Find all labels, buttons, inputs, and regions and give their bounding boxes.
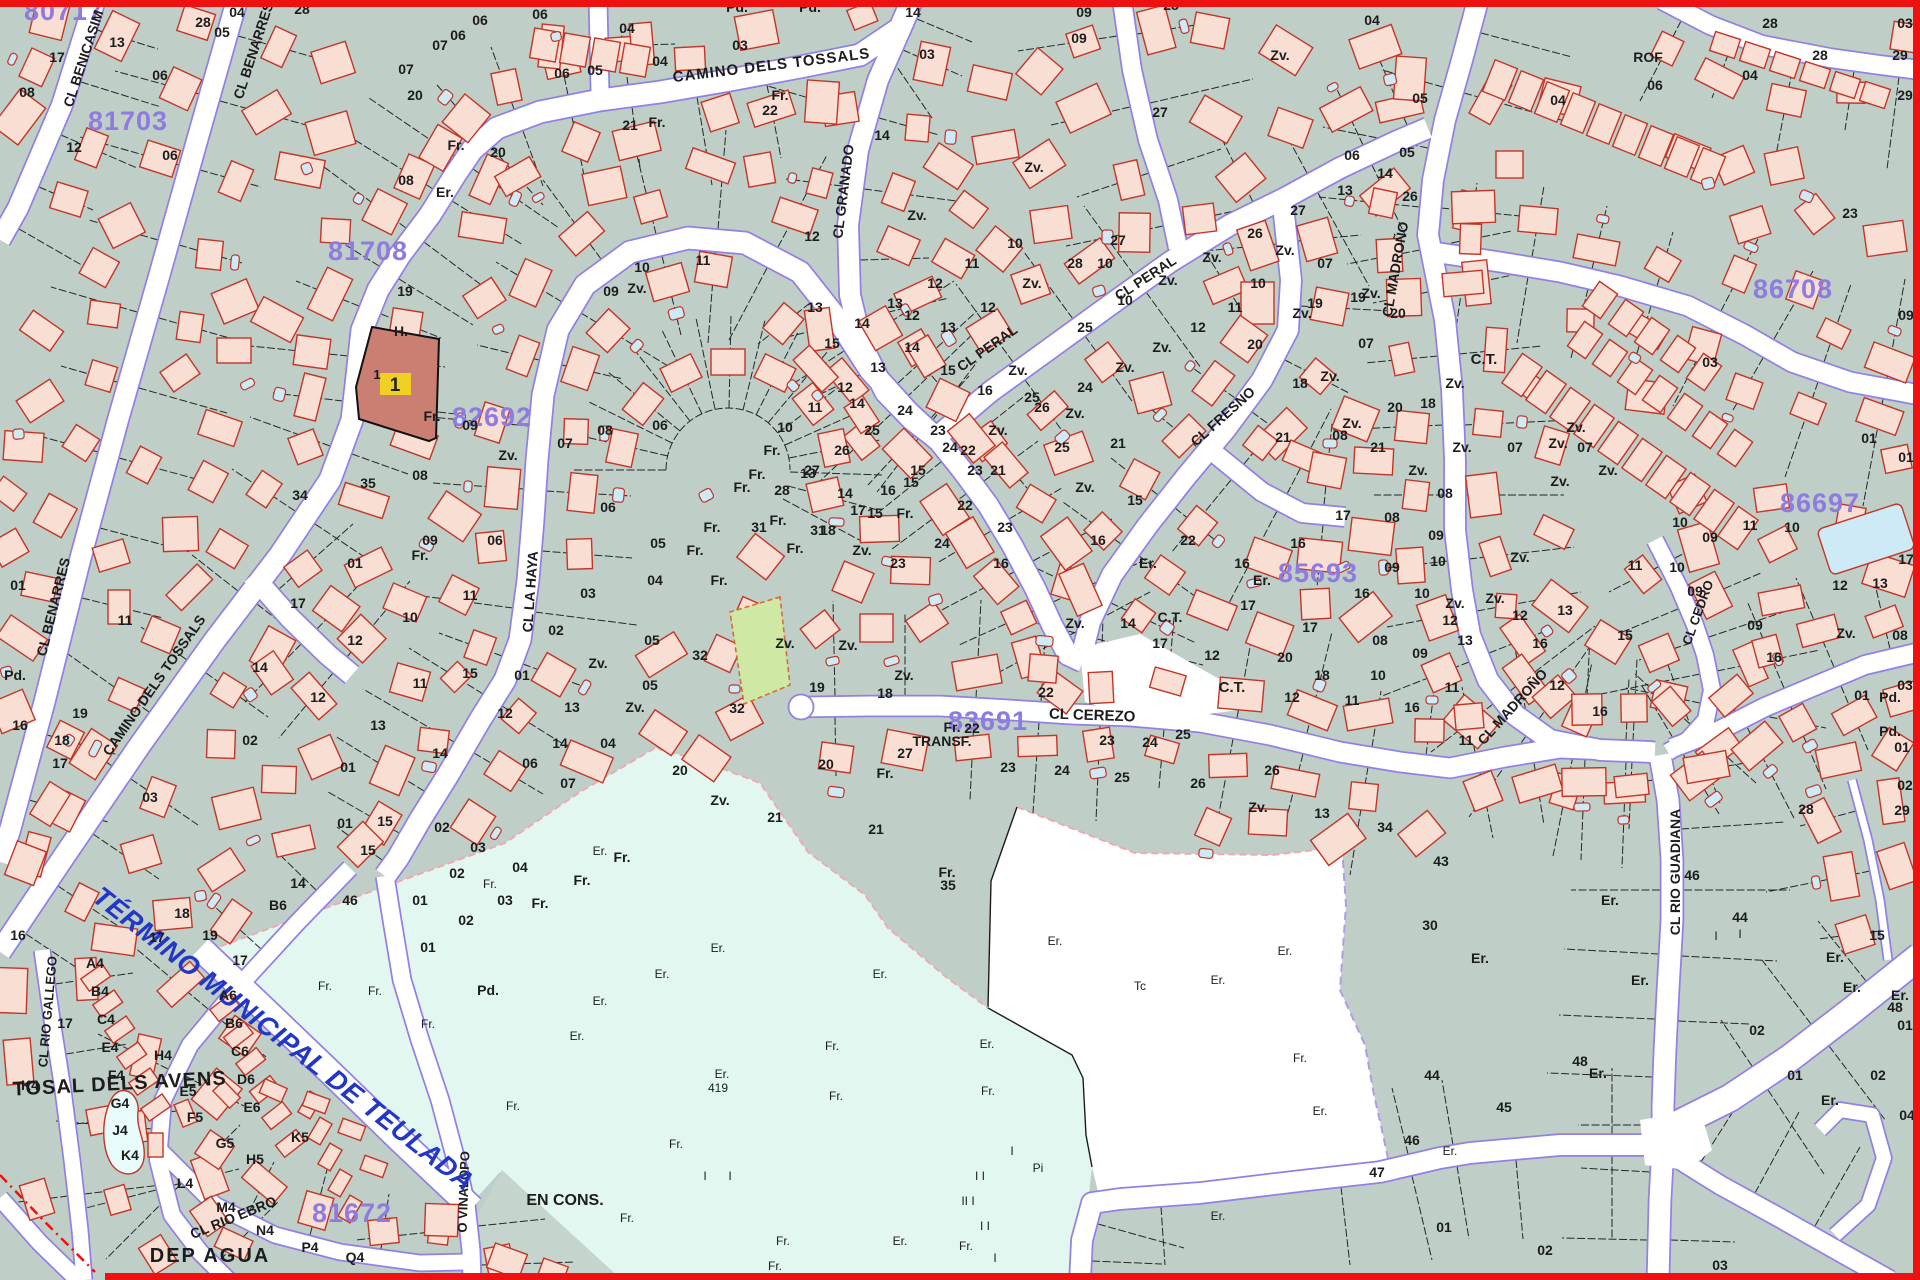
svg-text:19: 19: [1350, 289, 1366, 305]
svg-text:10: 10: [1097, 255, 1113, 271]
svg-text:Fr.: Fr.: [829, 1089, 843, 1103]
svg-text:G4: G4: [111, 1095, 130, 1111]
svg-text:09: 09: [462, 417, 478, 433]
svg-text:Er.: Er.: [1631, 972, 1649, 988]
svg-text:19: 19: [202, 927, 218, 943]
svg-text:18: 18: [174, 905, 190, 921]
svg-text:14: 14: [849, 395, 865, 411]
svg-text:H4: H4: [154, 1047, 172, 1063]
svg-text:08: 08: [1892, 627, 1908, 643]
svg-text:Er.: Er.: [1211, 1209, 1226, 1223]
svg-text:I: I: [1714, 929, 1717, 943]
svg-text:14: 14: [252, 659, 268, 675]
svg-text:28: 28: [1812, 47, 1828, 63]
svg-text:08: 08: [19, 84, 35, 100]
svg-text:Fr.: Fr.: [959, 1239, 973, 1253]
svg-text:Er.: Er.: [436, 184, 454, 200]
svg-text:06: 06: [652, 417, 668, 433]
svg-text:10: 10: [1784, 519, 1800, 535]
svg-text:E5: E5: [179, 1083, 196, 1099]
svg-text:12: 12: [66, 139, 82, 155]
svg-text:05: 05: [1412, 90, 1428, 106]
svg-text:13: 13: [109, 34, 125, 50]
svg-text:15: 15: [1617, 627, 1633, 643]
svg-text:Zv.: Zv.: [1008, 362, 1027, 378]
svg-text:23: 23: [1099, 732, 1115, 748]
svg-text:16: 16: [993, 555, 1009, 571]
svg-text:17: 17: [49, 49, 65, 65]
svg-text:22: 22: [964, 720, 980, 736]
svg-text:Fr.: Fr.: [776, 1234, 790, 1248]
svg-text:J4: J4: [112, 1122, 128, 1138]
svg-text:Fr.: Fr.: [896, 505, 913, 521]
svg-text:09: 09: [1071, 30, 1087, 46]
svg-text:05: 05: [587, 62, 603, 78]
svg-text:13: 13: [1337, 182, 1353, 198]
svg-text:419: 419: [708, 1081, 728, 1095]
svg-text:Zv.: Zv.: [1342, 415, 1361, 431]
svg-text:16: 16: [12, 717, 28, 733]
svg-text:12: 12: [1284, 689, 1300, 705]
svg-text:18: 18: [1314, 667, 1330, 683]
svg-text:05: 05: [650, 535, 666, 551]
svg-text:18: 18: [1292, 375, 1308, 391]
svg-text:17: 17: [1152, 635, 1168, 651]
svg-text:Zv.: Zv.: [588, 655, 607, 671]
svg-text:B6: B6: [225, 1015, 243, 1031]
svg-text:03: 03: [1897, 677, 1913, 693]
svg-text:Zv.: Zv.: [1158, 272, 1177, 288]
svg-text:B6: B6: [269, 897, 287, 913]
svg-text:23: 23: [1000, 759, 1016, 775]
svg-text:02: 02: [1870, 1067, 1886, 1083]
svg-text:27: 27: [1290, 202, 1306, 218]
svg-text:11: 11: [696, 252, 711, 268]
svg-text:Zv.: Zv.: [1836, 625, 1855, 641]
svg-text:Tc: Tc: [1134, 979, 1146, 993]
svg-text:81703: 81703: [88, 106, 168, 136]
svg-text:23: 23: [890, 555, 906, 571]
svg-text:23: 23: [997, 519, 1013, 535]
svg-text:Fr.: Fr.: [613, 849, 630, 865]
svg-text:26: 26: [1034, 399, 1050, 415]
svg-text:12: 12: [804, 228, 820, 244]
svg-text:07: 07: [1577, 439, 1593, 455]
svg-text:12: 12: [904, 307, 920, 323]
svg-text:03: 03: [497, 892, 513, 908]
svg-text:Zv.: Zv.: [838, 637, 857, 653]
svg-text:86697: 86697: [1780, 488, 1860, 518]
svg-text:DEP AGUA: DEP AGUA: [150, 1245, 270, 1267]
svg-text:1: 1: [373, 367, 380, 382]
svg-text:25: 25: [1114, 769, 1130, 785]
svg-text:21: 21: [990, 462, 1006, 478]
svg-text:25: 25: [1175, 726, 1191, 742]
svg-text:04: 04: [1364, 12, 1380, 28]
svg-text:Zv.: Zv.: [852, 542, 871, 558]
svg-text:08: 08: [597, 422, 613, 438]
svg-text:01: 01: [1854, 687, 1870, 703]
svg-text:Er.: Er.: [980, 1037, 995, 1051]
svg-text:01: 01: [1898, 449, 1914, 465]
svg-text:Er.: Er.: [1211, 973, 1226, 987]
svg-text:Fr.: Fr.: [669, 1137, 683, 1151]
svg-text:Fr.: Fr.: [411, 547, 428, 563]
svg-text:07: 07: [432, 37, 448, 53]
svg-text:06: 06: [532, 6, 548, 22]
svg-text:04: 04: [512, 859, 528, 875]
svg-text:06: 06: [600, 499, 616, 515]
svg-text:26: 26: [834, 442, 850, 458]
svg-text:15: 15: [867, 505, 883, 521]
svg-text:28: 28: [1798, 801, 1814, 817]
svg-text:22: 22: [1180, 532, 1196, 548]
svg-text:09: 09: [1412, 645, 1428, 661]
svg-text:Zv.: Zv.: [1270, 47, 1289, 63]
svg-text:Zv.: Zv.: [1445, 595, 1464, 611]
svg-text:16: 16: [1404, 699, 1420, 715]
svg-text:01: 01: [420, 939, 436, 955]
svg-text:N4: N4: [256, 1222, 274, 1238]
svg-text:I I: I I: [980, 1219, 990, 1233]
svg-text:01: 01: [412, 892, 428, 908]
svg-text:12: 12: [1442, 612, 1458, 628]
svg-text:25: 25: [1077, 319, 1093, 335]
svg-text:I: I: [1738, 927, 1741, 941]
svg-text:I: I: [993, 1251, 996, 1265]
svg-text:Fr.: Fr.: [825, 1039, 839, 1053]
svg-text:46: 46: [1684, 867, 1700, 883]
svg-text:02: 02: [1749, 1022, 1765, 1038]
svg-text:B4: B4: [91, 983, 109, 999]
svg-text:16: 16: [1090, 532, 1106, 548]
svg-text:Zv.: Zv.: [1548, 435, 1567, 451]
svg-text:06: 06: [162, 147, 178, 163]
svg-text:Fr.: Fr.: [876, 765, 893, 781]
svg-text:Fr.: Fr.: [531, 895, 548, 911]
svg-text:20: 20: [1387, 399, 1403, 415]
svg-text:EN CONS.: EN CONS.: [526, 1192, 603, 1209]
svg-text:01: 01: [1897, 1017, 1913, 1033]
svg-text:22: 22: [957, 497, 973, 513]
svg-text:12: 12: [1190, 319, 1206, 335]
svg-text:24: 24: [942, 439, 958, 455]
svg-text:13: 13: [370, 717, 386, 733]
svg-text:Fr.: Fr.: [748, 466, 765, 482]
svg-text:06: 06: [472, 12, 488, 28]
svg-text:25: 25: [1054, 439, 1070, 455]
svg-text:14: 14: [290, 875, 306, 891]
svg-text:12: 12: [1832, 577, 1848, 593]
svg-text:34: 34: [1377, 819, 1393, 835]
svg-text:1: 1: [390, 375, 401, 396]
svg-text:Fr.: Fr.: [1293, 1051, 1307, 1065]
svg-text:16: 16: [1766, 649, 1782, 665]
svg-text:18: 18: [877, 685, 893, 701]
svg-text:20: 20: [1247, 336, 1263, 352]
svg-text:16: 16: [10, 927, 26, 943]
svg-text:Zv.: Zv.: [1115, 359, 1134, 375]
svg-text:07: 07: [557, 435, 573, 451]
svg-text:81708: 81708: [328, 236, 408, 266]
svg-text:04: 04: [652, 53, 668, 69]
svg-text:28: 28: [195, 14, 211, 30]
svg-text:11: 11: [1628, 557, 1643, 573]
svg-text:21: 21: [622, 117, 638, 133]
svg-text:03: 03: [580, 585, 596, 601]
svg-text:08: 08: [1384, 509, 1400, 525]
svg-text:13: 13: [807, 299, 823, 315]
svg-text:Zv.: Zv.: [1292, 305, 1311, 321]
svg-text:Fr.: Fr.: [733, 479, 750, 495]
svg-text:13: 13: [564, 699, 580, 715]
svg-text:16: 16: [1354, 585, 1370, 601]
svg-text:Zv.: Zv.: [988, 422, 1007, 438]
svg-text:15: 15: [1869, 927, 1885, 943]
svg-text:13: 13: [1457, 632, 1473, 648]
svg-text:08: 08: [398, 172, 414, 188]
svg-text:48: 48: [1887, 999, 1903, 1015]
svg-text:11: 11: [463, 587, 478, 603]
svg-text:12: 12: [980, 299, 996, 315]
svg-text:09: 09: [1384, 559, 1400, 575]
svg-text:14: 14: [1377, 165, 1393, 181]
svg-text:I: I: [728, 1169, 731, 1183]
svg-text:15: 15: [462, 665, 478, 681]
svg-text:26: 26: [1247, 225, 1263, 241]
svg-text:23: 23: [1842, 205, 1858, 221]
svg-text:01: 01: [347, 555, 363, 571]
svg-text:14: 14: [432, 745, 448, 761]
svg-text:Zv.: Zv.: [1408, 462, 1427, 478]
svg-text:12: 12: [347, 632, 363, 648]
svg-text:46: 46: [1404, 1132, 1420, 1148]
svg-text:Er.: Er.: [893, 1234, 908, 1248]
svg-text:Zv.: Zv.: [710, 792, 729, 808]
svg-text:30: 30: [1422, 917, 1438, 933]
svg-text:29: 29: [1894, 802, 1910, 818]
svg-text:Fr.: Fr.: [771, 87, 788, 103]
svg-text:P4: P4: [301, 1239, 318, 1255]
svg-text:Zv.: Zv.: [1065, 405, 1084, 421]
svg-text:10: 10: [402, 609, 418, 625]
svg-text:02: 02: [548, 622, 564, 638]
svg-text:C4: C4: [97, 1011, 115, 1027]
svg-text:Fr.: Fr.: [447, 137, 464, 153]
svg-text:16: 16: [880, 482, 896, 498]
svg-text:11: 11: [413, 675, 428, 691]
svg-text:Er.: Er.: [1826, 949, 1844, 965]
svg-text:06: 06: [152, 67, 168, 83]
svg-text:09: 09: [603, 283, 619, 299]
svg-text:I: I: [1010, 1144, 1013, 1158]
svg-text:04: 04: [1899, 1107, 1915, 1123]
svg-text:Fr.: Fr.: [318, 979, 332, 993]
svg-text:20: 20: [818, 756, 834, 772]
svg-text:L4: L4: [177, 1175, 194, 1191]
svg-text:01: 01: [340, 759, 356, 775]
svg-text:Zv.: Zv.: [1022, 275, 1041, 291]
svg-text:Q4: Q4: [346, 1249, 365, 1265]
svg-text:17: 17: [1302, 619, 1318, 635]
svg-text:11: 11: [965, 255, 980, 271]
svg-text:13: 13: [1557, 602, 1573, 618]
svg-text:Fr.: Fr.: [710, 572, 727, 588]
svg-text:01: 01: [1861, 430, 1877, 446]
svg-text:Fr.: Fr.: [573, 872, 590, 888]
svg-text:19: 19: [809, 679, 825, 695]
svg-text:15: 15: [824, 335, 840, 351]
svg-text:Er.: Er.: [655, 967, 670, 981]
svg-text:17: 17: [290, 595, 306, 611]
svg-text:ROF: ROF: [1633, 49, 1663, 65]
svg-text:H5: H5: [246, 1151, 264, 1167]
svg-text:10: 10: [634, 259, 650, 275]
svg-text:03: 03: [142, 789, 158, 805]
svg-text:15: 15: [360, 842, 376, 858]
svg-text:03: 03: [1712, 1257, 1728, 1273]
svg-text:CL RIO GUADIANA: CL RIO GUADIANA: [1667, 809, 1683, 936]
svg-text:Zv.: Zv.: [498, 447, 517, 463]
svg-text:01: 01: [1436, 1219, 1452, 1235]
svg-text:10: 10: [1414, 585, 1430, 601]
svg-text:Zv.: Zv.: [1152, 339, 1171, 355]
svg-text:II I: II I: [961, 1194, 974, 1208]
svg-text:Er.: Er.: [711, 941, 726, 955]
svg-text:Er.: Er.: [873, 967, 888, 981]
svg-text:06: 06: [487, 532, 503, 548]
svg-text:11: 11: [1459, 732, 1474, 748]
svg-text:E6: E6: [243, 1099, 260, 1115]
svg-text:10: 10: [1117, 292, 1133, 308]
svg-text:18: 18: [54, 732, 70, 748]
svg-text:05: 05: [642, 677, 658, 693]
svg-text:07: 07: [1358, 335, 1374, 351]
svg-text:14: 14: [837, 485, 853, 501]
svg-text:11: 11: [1228, 299, 1243, 315]
svg-text:Er.: Er.: [1821, 1092, 1839, 1108]
svg-text:27: 27: [804, 462, 820, 478]
svg-text:06: 06: [522, 755, 538, 771]
svg-text:Zv.: Zv.: [1550, 473, 1569, 489]
svg-text:21: 21: [767, 809, 783, 825]
svg-text:27: 27: [1152, 104, 1168, 120]
svg-text:20: 20: [490, 144, 506, 160]
svg-text:34: 34: [292, 487, 308, 503]
svg-text:19: 19: [72, 705, 88, 721]
svg-text:01: 01: [337, 815, 353, 831]
svg-text:Pd.: Pd.: [1879, 723, 1901, 739]
svg-text:16: 16: [1234, 555, 1250, 571]
svg-text:12: 12: [1549, 677, 1565, 693]
svg-text:01: 01: [1787, 1067, 1803, 1083]
svg-text:86708: 86708: [1753, 274, 1833, 304]
svg-text:Zv.: Zv.: [1202, 249, 1221, 265]
svg-text:G5: G5: [216, 1135, 235, 1151]
svg-text:Fr.: Fr.: [786, 540, 803, 556]
svg-text:Zv.: Zv.: [894, 667, 913, 683]
svg-text:05: 05: [1399, 144, 1415, 160]
svg-text:Fr.: Fr.: [769, 512, 786, 528]
svg-text:Er.: Er.: [1589, 1065, 1607, 1081]
svg-text:09: 09: [422, 532, 438, 548]
svg-text:Fr.: Fr.: [768, 1259, 782, 1273]
svg-text:Zv.: Zv.: [1075, 479, 1094, 495]
svg-text:19: 19: [397, 283, 413, 299]
svg-text:26: 26: [1402, 188, 1418, 204]
svg-text:15: 15: [940, 362, 956, 378]
svg-text:11: 11: [1743, 517, 1758, 533]
svg-text:04: 04: [619, 20, 635, 36]
svg-text:26: 26: [1264, 762, 1280, 778]
svg-text:Er.: Er.: [1278, 944, 1293, 958]
svg-text:C.T.: C.T.: [1219, 679, 1246, 696]
svg-text:45: 45: [1496, 1099, 1512, 1115]
svg-text:04: 04: [647, 572, 663, 588]
svg-text:21: 21: [1110, 435, 1126, 451]
svg-text:06: 06: [1647, 77, 1663, 93]
svg-text:12: 12: [310, 689, 326, 705]
svg-text:20: 20: [1390, 305, 1406, 321]
svg-text:21: 21: [1370, 439, 1386, 455]
svg-text:Er.: Er.: [1471, 950, 1489, 966]
svg-text:27: 27: [1110, 232, 1126, 248]
svg-text:Er.: Er.: [1048, 934, 1063, 948]
svg-text:K5: K5: [291, 1129, 309, 1145]
svg-text:Er.: Er.: [1843, 979, 1861, 995]
svg-text:09: 09: [1747, 617, 1763, 633]
svg-text:28: 28: [1067, 255, 1083, 271]
svg-text:A4: A4: [86, 955, 104, 971]
svg-text:26: 26: [1190, 775, 1206, 791]
svg-text:02: 02: [242, 732, 258, 748]
svg-text:Zv.: Zv.: [775, 635, 794, 651]
svg-text:Fr.: Fr.: [943, 719, 960, 735]
svg-text:Fr.: Fr.: [506, 1099, 520, 1113]
svg-text:07: 07: [1317, 255, 1333, 271]
svg-text:32: 32: [729, 700, 745, 716]
svg-text:02: 02: [458, 912, 474, 928]
svg-text:09: 09: [1428, 527, 1444, 543]
svg-text:Zv.: Zv.: [1452, 439, 1471, 455]
svg-text:09: 09: [1898, 307, 1914, 323]
svg-text:02: 02: [434, 819, 450, 835]
svg-text:Zv.: Zv.: [1445, 375, 1464, 391]
svg-text:13: 13: [870, 359, 886, 375]
svg-text:11: 11: [808, 399, 823, 415]
svg-text:10: 10: [1430, 553, 1446, 569]
svg-text:05: 05: [644, 632, 660, 648]
svg-text:12: 12: [1512, 607, 1528, 623]
svg-text:Zv.: Zv.: [1566, 419, 1585, 435]
svg-text:03: 03: [1702, 354, 1718, 370]
svg-text:08: 08: [1437, 485, 1453, 501]
svg-text:Er.: Er.: [1253, 572, 1271, 588]
svg-text:04: 04: [1742, 67, 1758, 83]
svg-text:Zv.: Zv.: [625, 699, 644, 715]
svg-text:K4: K4: [121, 1147, 139, 1163]
svg-text:06: 06: [1344, 147, 1360, 163]
svg-text:20: 20: [1277, 649, 1293, 665]
svg-text:13: 13: [1872, 575, 1888, 591]
svg-text:35: 35: [940, 877, 956, 893]
svg-text:48: 48: [1572, 1053, 1588, 1069]
svg-text:Fr.: Fr.: [620, 1211, 634, 1225]
svg-text:21: 21: [868, 821, 884, 837]
svg-text:Fr.: Fr.: [421, 1017, 435, 1031]
svg-text:A6: A6: [219, 987, 237, 1003]
svg-text:18: 18: [1420, 395, 1436, 411]
